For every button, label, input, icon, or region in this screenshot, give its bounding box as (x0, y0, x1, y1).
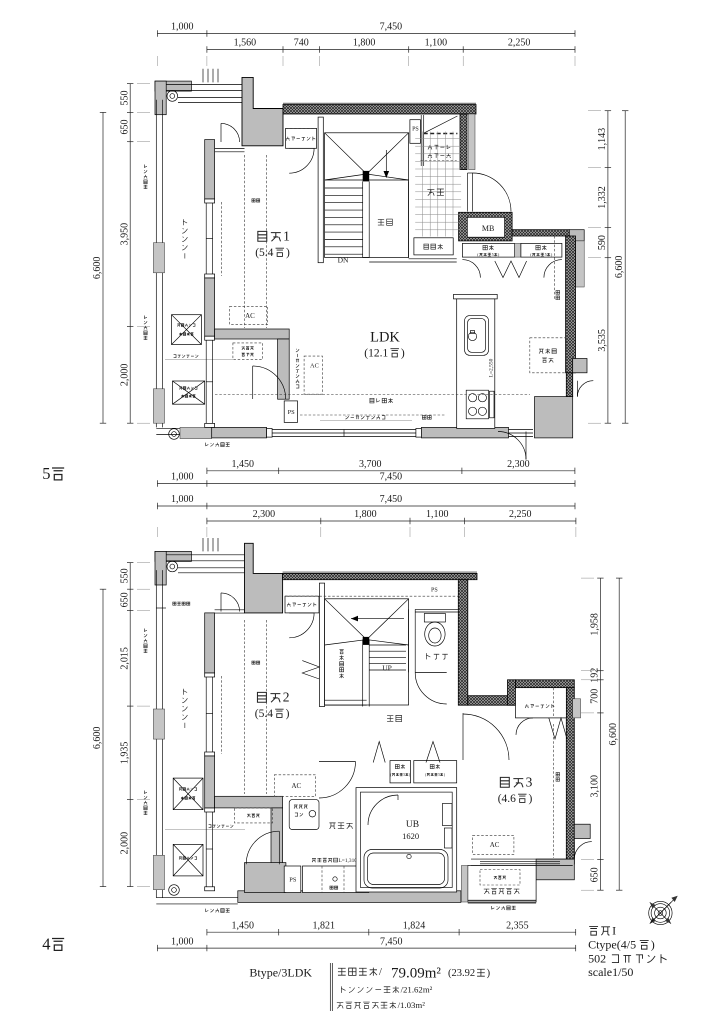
svg-text:650: 650 (119, 592, 130, 607)
svg-text:550: 550 (119, 568, 130, 583)
svg-text:(23.92: (23.92 (448, 968, 475, 979)
svg-text:AC: AC (310, 363, 319, 370)
svg-text:550: 550 (119, 90, 130, 105)
svg-text:MB: MB (482, 224, 494, 233)
svg-text:/: / (379, 967, 382, 978)
svg-text:2,000: 2,000 (119, 832, 130, 855)
svg-text:AC: AC (245, 312, 255, 320)
svg-text:740: 740 (294, 38, 309, 49)
svg-text:3,100: 3,100 (590, 775, 601, 798)
svg-text:7,450: 7,450 (380, 22, 403, 33)
svg-text:(4.6: (4.6 (498, 793, 516, 805)
svg-text:1620: 1620 (402, 831, 419, 841)
svg-text:502: 502 (588, 952, 606, 966)
svg-text:/21.62m²: /21.62m² (401, 985, 433, 995)
svg-text:1,824: 1,824 (403, 920, 426, 931)
svg-text:650: 650 (590, 867, 601, 882)
svg-text:650: 650 (119, 119, 130, 134)
svg-text:1,100: 1,100 (426, 509, 449, 520)
svg-text:1,560: 1,560 (234, 38, 257, 49)
svg-text:(5.4: (5.4 (255, 247, 273, 259)
svg-text:1,800: 1,800 (353, 38, 376, 49)
svg-text:1,000: 1,000 (171, 472, 194, 483)
svg-text:/1.03m²: /1.03m² (398, 1000, 426, 1010)
svg-text:): ) (651, 938, 655, 952)
svg-text:UB: UB (406, 820, 419, 830)
svg-text:2,000: 2,000 (119, 364, 130, 387)
svg-text:3,700: 3,700 (359, 459, 382, 470)
svg-text:UP: UP (382, 664, 392, 673)
svg-text:Btype/3LDK: Btype/3LDK (249, 966, 312, 980)
svg-text:2,015: 2,015 (119, 647, 130, 670)
svg-text:2: 2 (283, 690, 290, 705)
svg-text:1,450: 1,450 (232, 920, 255, 931)
svg-text:1,000: 1,000 (171, 936, 194, 947)
svg-text:6,600: 6,600 (614, 256, 625, 279)
svg-text:1,450: 1,450 (232, 459, 255, 470)
svg-text:3,950: 3,950 (119, 223, 130, 246)
svg-text:6,600: 6,600 (92, 257, 103, 280)
svg-text:AC: AC (490, 841, 500, 849)
svg-text:1,000: 1,000 (171, 494, 194, 505)
svg-text:AC: AC (292, 782, 302, 790)
svg-text:3: 3 (526, 775, 533, 790)
svg-text:DN: DN (338, 256, 349, 265)
svg-text:6,600: 6,600 (608, 723, 619, 746)
svg-text:2,300: 2,300 (507, 459, 530, 470)
svg-text:1,800: 1,800 (354, 509, 377, 520)
svg-text:4: 4 (42, 935, 50, 954)
svg-text:3,535: 3,535 (597, 329, 608, 352)
svg-text:): ) (286, 708, 290, 720)
svg-text:5: 5 (545, 252, 547, 257)
svg-text:PS: PS (412, 127, 419, 133)
svg-text:I: I (612, 924, 616, 938)
svg-text:): ) (286, 247, 290, 259)
svg-text:): ) (401, 347, 405, 359)
svg-text:1: 1 (283, 229, 290, 244)
svg-text:1,000: 1,000 (171, 22, 194, 33)
svg-text:192: 192 (590, 668, 601, 683)
svg-text:7,450: 7,450 (380, 936, 403, 947)
svg-text:(5.4: (5.4 (255, 708, 273, 720)
svg-text:L=2,550: L=2,550 (489, 358, 495, 377)
svg-text:Ctype(4/5: Ctype(4/5 (588, 938, 636, 952)
svg-text:scale1/50: scale1/50 (588, 965, 633, 979)
svg-text:5: 5 (403, 773, 405, 777)
svg-text:1,332: 1,332 (597, 186, 608, 209)
svg-text:700: 700 (590, 689, 601, 704)
svg-text:PS: PS (289, 876, 297, 883)
svg-text:5: 5 (438, 773, 440, 777)
svg-text:5: 5 (492, 252, 494, 257)
svg-text:1,958: 1,958 (590, 613, 601, 636)
svg-text:7,450: 7,450 (380, 472, 403, 483)
svg-text:5: 5 (42, 464, 50, 483)
svg-text:2,250: 2,250 (509, 509, 532, 520)
svg-text:1,100: 1,100 (425, 38, 448, 49)
svg-text:1,935: 1,935 (119, 742, 130, 765)
svg-text:2,355: 2,355 (506, 920, 529, 931)
svg-text:L=1,310: L=1,310 (339, 858, 358, 864)
svg-text:): ) (529, 793, 533, 805)
svg-text:(12.1: (12.1 (364, 347, 388, 359)
svg-text:2,250: 2,250 (508, 38, 531, 49)
svg-text:LDK: LDK (370, 330, 400, 346)
svg-text:PS: PS (288, 409, 296, 416)
svg-text:7,450: 7,450 (380, 494, 403, 505)
svg-text:6,600: 6,600 (92, 727, 103, 750)
svg-text:PS: PS (431, 588, 438, 594)
svg-text:1,143: 1,143 (597, 128, 608, 151)
svg-text:590: 590 (597, 235, 608, 250)
svg-text:): ) (487, 968, 491, 979)
svg-text:1,821: 1,821 (313, 920, 336, 931)
svg-text:79.09m²: 79.09m² (391, 966, 441, 982)
svg-text:2,300: 2,300 (253, 509, 276, 520)
